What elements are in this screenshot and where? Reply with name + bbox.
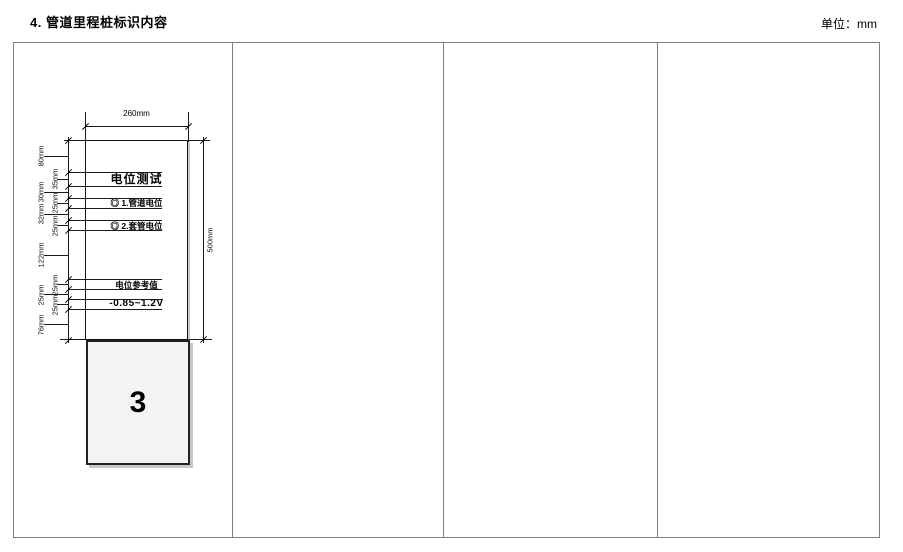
- pile-base: 3: [86, 340, 190, 465]
- dim-leader-line: [44, 156, 68, 157]
- dim-boundary-line: [68, 220, 162, 221]
- dim-boundary-line: [68, 289, 162, 290]
- document-page: 4. 管道里程桩标识内容 单位：mm 260mm 500mm 3 电位测试 ◎ …: [0, 0, 903, 552]
- dim-label: 25mm: [51, 215, 60, 236]
- dim-label: 25mm: [51, 193, 60, 214]
- right-dim-line: [203, 137, 204, 343]
- dim-boundary-line: [68, 230, 162, 231]
- dim-boundary-line: [68, 279, 162, 280]
- dim-label: 25mm: [51, 274, 60, 295]
- dim-label: 35mm: [51, 169, 60, 190]
- dim-label: 32mm: [37, 204, 46, 225]
- dim-boundary-line: [68, 299, 162, 300]
- dim-boundary-line: [68, 208, 162, 209]
- dim-label: 122mm: [37, 243, 46, 268]
- dim-label-500: 500mm: [206, 227, 215, 252]
- dim-line-260: [85, 126, 188, 127]
- dim-boundary-line: [68, 198, 162, 199]
- pile-number: 3: [130, 386, 147, 420]
- left-dim-line: [68, 137, 69, 343]
- dim-leader-line: [44, 255, 68, 256]
- dim-boundary-line: [68, 186, 162, 187]
- dim-label-260: 260mm: [85, 109, 188, 118]
- dim-boundary-line: [68, 172, 162, 173]
- dim-label: 76mm: [37, 314, 46, 335]
- dim-leader-line: [44, 324, 68, 325]
- dim-boundary-line: [68, 309, 162, 310]
- dim-label: 80mm: [37, 146, 46, 167]
- dim-label: 25mm: [37, 284, 46, 305]
- dim-label: 25mm: [51, 294, 60, 315]
- dim-label: 30mm: [37, 182, 46, 203]
- marker-post-drawing: 260mm 500mm 3 电位测试 ◎ 1.管道电位 ◎ 2.套管电位 电位参…: [0, 0, 903, 552]
- sign-title: 电位测试: [85, 170, 188, 187]
